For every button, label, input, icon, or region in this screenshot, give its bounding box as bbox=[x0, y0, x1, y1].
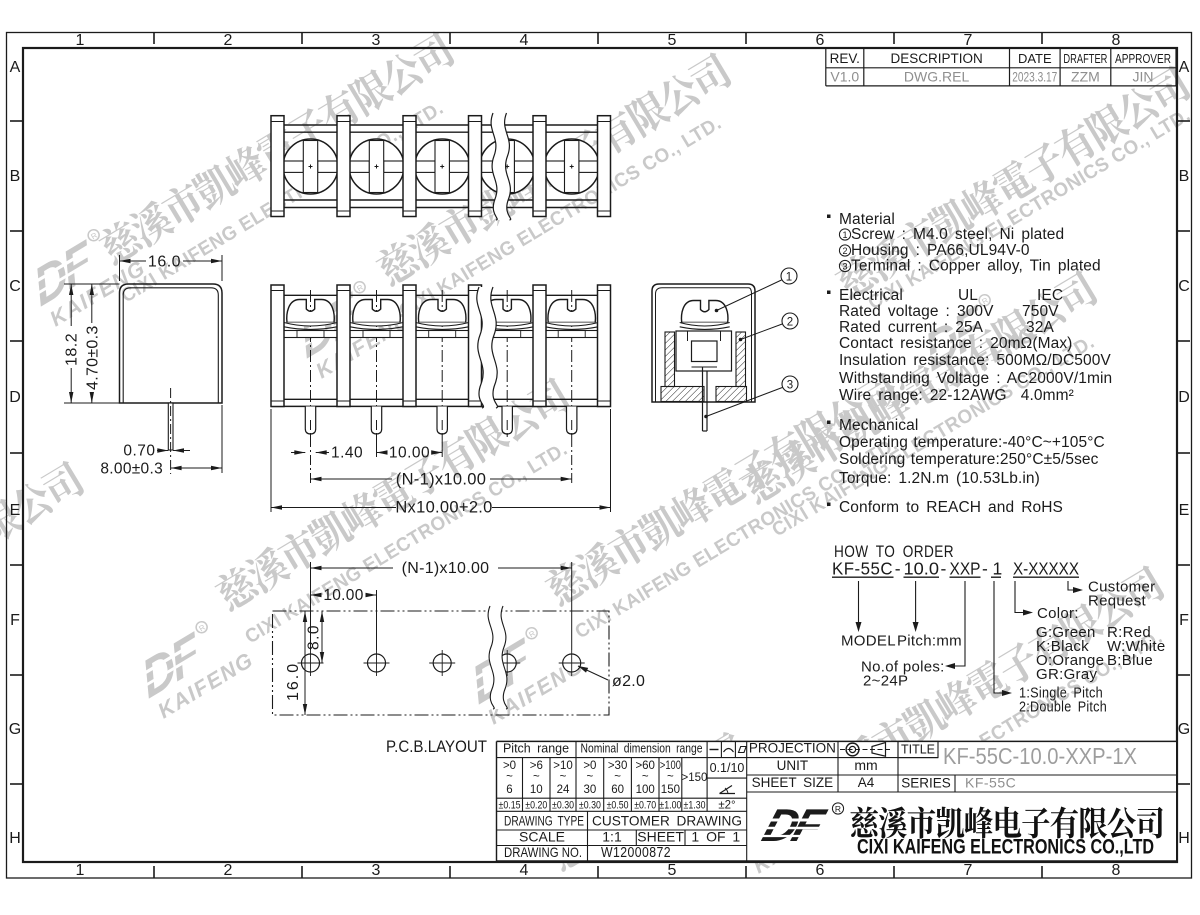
svg-text:~: ~ bbox=[560, 771, 567, 783]
svg-text:Rated current : 25A: Rated current : 25A bbox=[839, 319, 984, 336]
svg-text:1 OF 1: 1 OF 1 bbox=[691, 829, 740, 845]
svg-text:2: 2 bbox=[224, 32, 233, 49]
svg-text:KF-55C: KF-55C bbox=[965, 775, 1016, 791]
svg-text:1: 1 bbox=[76, 32, 85, 49]
svg-text:V1.0: V1.0 bbox=[830, 69, 859, 85]
svg-text:DWG.REL: DWG.REL bbox=[904, 69, 970, 85]
svg-text:2: 2 bbox=[787, 317, 793, 329]
svg-text:Color:: Color: bbox=[1037, 605, 1079, 622]
svg-text:ZZM: ZZM bbox=[1071, 69, 1100, 85]
svg-text:750V: 750V bbox=[1022, 303, 1059, 320]
svg-text:PROJECTION: PROJECTION bbox=[749, 741, 836, 756]
svg-text:Pitch range: Pitch range bbox=[503, 742, 569, 756]
svg-text:8: 8 bbox=[1112, 32, 1121, 49]
svg-text:DATE: DATE bbox=[1018, 51, 1052, 66]
svg-text:7: 7 bbox=[964, 862, 973, 879]
svg-text:DESCRIPTION: DESCRIPTION bbox=[890, 51, 982, 66]
svg-text:Conform to REACH and RoHS: Conform to REACH and RoHS bbox=[839, 499, 1063, 516]
svg-text:APPROVER: APPROVER bbox=[1115, 52, 1171, 66]
svg-text:P.C.B.LAYOUT: P.C.B.LAYOUT bbox=[386, 737, 487, 756]
svg-text:REV.: REV. bbox=[830, 51, 860, 66]
svg-text:16.0: 16.0 bbox=[148, 254, 181, 271]
svg-text:4: 4 bbox=[520, 862, 529, 879]
svg-text:D: D bbox=[1178, 389, 1190, 406]
svg-text:±0.30: ±0.30 bbox=[552, 800, 574, 812]
svg-text:Mechanical: Mechanical bbox=[839, 417, 918, 434]
svg-text:ø2.0: ø2.0 bbox=[612, 673, 645, 690]
svg-text:>150: >150 bbox=[682, 772, 708, 784]
svg-text:0.70: 0.70 bbox=[123, 443, 155, 460]
svg-text:±0.20: ±0.20 bbox=[525, 800, 547, 812]
svg-text:5: 5 bbox=[668, 32, 677, 49]
svg-text:IEC: IEC bbox=[1037, 287, 1063, 304]
svg-text:~: ~ bbox=[614, 771, 621, 783]
svg-text:±2°: ±2° bbox=[718, 800, 735, 812]
svg-text:UNIT: UNIT bbox=[777, 758, 809, 773]
svg-text:4.70±0.3: 4.70±0.3 bbox=[85, 325, 102, 390]
svg-text:TITLE: TITLE bbox=[901, 743, 935, 757]
svg-text:Nominal dimension range: Nominal dimension range bbox=[581, 742, 703, 756]
svg-text:R: R bbox=[835, 804, 841, 814]
svg-text:Electrical: Electrical bbox=[839, 287, 903, 304]
svg-text:6: 6 bbox=[816, 862, 825, 879]
svg-text:mm: mm bbox=[854, 757, 877, 773]
svg-text:1: 1 bbox=[993, 559, 1003, 579]
svg-text:~: ~ bbox=[587, 771, 594, 783]
svg-text:Pitch:mm: Pitch:mm bbox=[897, 633, 962, 650]
svg-text:7: 7 bbox=[964, 32, 973, 49]
svg-text:Contact resistance : 20mΩ(Max): Contact resistance : 20mΩ(Max) bbox=[839, 335, 1072, 352]
svg-text:B:Blue: B:Blue bbox=[1107, 652, 1153, 669]
svg-text:±0.15: ±0.15 bbox=[499, 800, 521, 812]
svg-text:3: 3 bbox=[842, 262, 847, 272]
svg-text:6: 6 bbox=[506, 784, 512, 796]
svg-text:Request: Request bbox=[1088, 593, 1147, 610]
svg-text:~: ~ bbox=[667, 771, 674, 783]
svg-text:8: 8 bbox=[1112, 862, 1121, 879]
svg-text:Housing : PA66,UL94V-0: Housing : PA66,UL94V-0 bbox=[851, 242, 1030, 259]
svg-text:B: B bbox=[1179, 168, 1190, 185]
svg-text:Soldering temperature:250°C±5/: Soldering temperature:250°C±5/5sec bbox=[839, 451, 1099, 468]
svg-text:C: C bbox=[9, 278, 21, 295]
svg-text:1:1: 1:1 bbox=[602, 829, 622, 845]
svg-text:DRAFTER: DRAFTER bbox=[1063, 52, 1107, 66]
svg-text:Withstanding Voltage : AC2000V: Withstanding Voltage : AC2000V/1min bbox=[839, 370, 1112, 387]
svg-text:(N-1)x10.00: (N-1)x10.00 bbox=[396, 471, 486, 489]
svg-text:(N-1)x10.00: (N-1)x10.00 bbox=[402, 560, 490, 577]
svg-text:60: 60 bbox=[611, 784, 624, 796]
svg-text:2023.3.17: 2023.3.17 bbox=[1012, 70, 1057, 85]
svg-text:1: 1 bbox=[786, 272, 792, 284]
svg-text:100: 100 bbox=[636, 784, 655, 796]
svg-text:XXP: XXP bbox=[950, 559, 981, 579]
svg-text:SERIES: SERIES bbox=[901, 776, 951, 791]
svg-text:G: G bbox=[1178, 721, 1190, 738]
svg-text:1.40: 1.40 bbox=[331, 445, 363, 462]
svg-text:Operating temperature:-40°C~+1: Operating temperature:-40°C~+105°C bbox=[839, 434, 1105, 451]
svg-text:JIN: JIN bbox=[1133, 69, 1154, 85]
svg-text:SCALE: SCALE bbox=[519, 829, 565, 845]
svg-text:3: 3 bbox=[787, 380, 793, 392]
svg-text:H: H bbox=[1178, 830, 1190, 847]
svg-text:Rated voltage : 300V: Rated voltage : 300V bbox=[839, 303, 994, 320]
svg-text:SHEET SIZE: SHEET SIZE bbox=[752, 775, 834, 790]
svg-text:4: 4 bbox=[520, 32, 529, 49]
svg-text:0.1/10: 0.1/10 bbox=[710, 761, 745, 775]
svg-text:1: 1 bbox=[76, 862, 85, 879]
svg-text:10.00: 10.00 bbox=[323, 587, 363, 604]
svg-text:-: - bbox=[941, 559, 947, 579]
svg-text:C: C bbox=[1178, 278, 1190, 295]
svg-text:CUSTOMER DRAWING: CUSTOMER DRAWING bbox=[592, 813, 742, 829]
svg-text:Insulation resistance: 500MΩ/D: Insulation resistance: 500MΩ/DC500V bbox=[839, 352, 1111, 369]
svg-text:SHEET: SHEET bbox=[637, 829, 684, 845]
svg-text:E: E bbox=[10, 502, 21, 519]
svg-text:3: 3 bbox=[372, 862, 381, 879]
svg-text:±0.50: ±0.50 bbox=[607, 800, 629, 812]
svg-text:~: ~ bbox=[642, 771, 649, 783]
svg-text:10: 10 bbox=[530, 784, 543, 796]
svg-text:Torque: 1.2N.m (10.53Lb.in): Torque: 1.2N.m (10.53Lb.in) bbox=[839, 470, 1040, 487]
svg-text:DRAWING NO.: DRAWING NO. bbox=[504, 844, 582, 860]
svg-text:F: F bbox=[1179, 612, 1189, 629]
svg-text:32A: 32A bbox=[1026, 319, 1054, 336]
svg-text:8.0: 8.0 bbox=[306, 624, 323, 650]
svg-text:-: - bbox=[982, 559, 988, 579]
svg-text:6: 6 bbox=[816, 32, 825, 49]
svg-text:KF-55C-10.0-XXP-1X: KF-55C-10.0-XXP-1X bbox=[943, 743, 1137, 769]
svg-text:2: 2 bbox=[842, 246, 847, 256]
svg-text:±1.30: ±1.30 bbox=[684, 800, 706, 812]
svg-text:Nx10.00+2.0: Nx10.00+2.0 bbox=[395, 499, 492, 517]
svg-text:Wire range: 22-12AWG 4.0mm²: Wire range: 22-12AWG 4.0mm² bbox=[839, 387, 1074, 404]
svg-text:E: E bbox=[1179, 502, 1190, 519]
svg-text:10.00: 10.00 bbox=[389, 445, 430, 462]
svg-text:B: B bbox=[10, 168, 21, 185]
svg-text:CIXI KAIFENG ELECTRONICS CO.,L: CIXI KAIFENG ELECTRONICS CO.,LTD bbox=[857, 836, 1154, 859]
svg-text:X-XXXXX: X-XXXXX bbox=[1013, 559, 1079, 579]
svg-text:1: 1 bbox=[842, 230, 847, 240]
svg-text:±1.00: ±1.00 bbox=[659, 800, 681, 812]
svg-text:16.0: 16.0 bbox=[285, 662, 302, 701]
svg-text:2: 2 bbox=[224, 862, 233, 879]
svg-text:8.00±0.3: 8.00±0.3 bbox=[100, 461, 163, 478]
svg-text:UL: UL bbox=[958, 287, 978, 304]
svg-text:±0.30: ±0.30 bbox=[579, 800, 601, 812]
svg-text:A: A bbox=[1179, 59, 1190, 76]
svg-text:GR:Gray: GR:Gray bbox=[1036, 666, 1097, 683]
svg-text:DRAWING TYPE: DRAWING TYPE bbox=[504, 813, 584, 829]
svg-text:Screw : M4.0 steel, Ni plated: Screw : M4.0 steel, Ni plated bbox=[851, 226, 1064, 243]
svg-text:150: 150 bbox=[661, 784, 680, 796]
svg-text:A: A bbox=[10, 59, 21, 76]
svg-text:24: 24 bbox=[557, 784, 570, 796]
svg-text:~: ~ bbox=[533, 771, 540, 783]
svg-text:2~24P: 2~24P bbox=[863, 673, 908, 690]
svg-text:3: 3 bbox=[372, 32, 381, 49]
svg-text:2:Double Pitch: 2:Double Pitch bbox=[1019, 699, 1107, 716]
svg-text:18.2: 18.2 bbox=[64, 333, 81, 366]
svg-text:F: F bbox=[10, 612, 20, 629]
svg-text:±0.70: ±0.70 bbox=[634, 800, 656, 812]
svg-text:Terminal : Copper alloy, Tin p: Terminal : Copper alloy, Tin plated bbox=[851, 258, 1101, 275]
svg-text:~: ~ bbox=[506, 771, 513, 783]
svg-text:5: 5 bbox=[668, 862, 677, 879]
svg-text:D: D bbox=[9, 389, 21, 406]
svg-text:G: G bbox=[9, 721, 21, 738]
svg-text:KF-55C: KF-55C bbox=[832, 559, 893, 579]
svg-text:MODEL: MODEL bbox=[841, 633, 896, 650]
svg-text:A4: A4 bbox=[858, 775, 875, 790]
svg-text:30: 30 bbox=[584, 784, 597, 796]
svg-text:W12000872: W12000872 bbox=[601, 845, 671, 861]
svg-text:-: - bbox=[895, 559, 901, 579]
svg-text:10.0: 10.0 bbox=[904, 559, 940, 579]
svg-text:H: H bbox=[9, 830, 21, 847]
